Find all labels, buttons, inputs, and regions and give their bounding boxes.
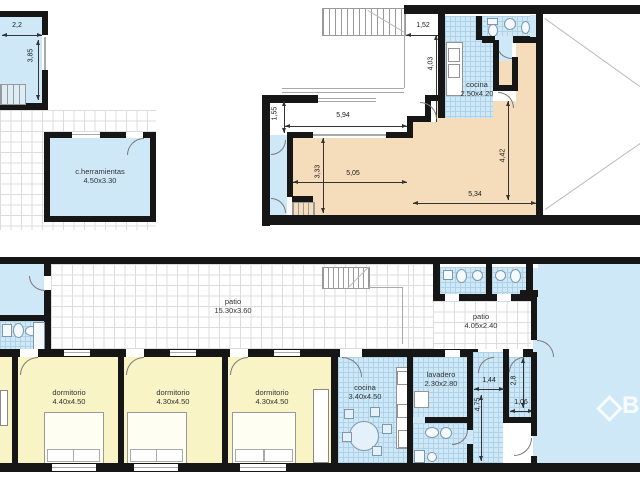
wall (262, 95, 270, 226)
dimension-label: 1,55 (272, 102, 279, 126)
door-gap (445, 294, 459, 301)
room-label-herramientas: c.herramientas 4.50x3.30 (72, 167, 128, 186)
room-label-lavadero: lavadero 2.30x2.80 (413, 370, 469, 389)
pillow (73, 449, 100, 462)
chair (370, 407, 380, 417)
dimension-label: 2,8 (511, 370, 518, 392)
dimension-label: 2,2 (4, 22, 30, 29)
washing-machine (414, 391, 429, 408)
room-size: 4.30x4.50 (244, 397, 300, 406)
dimension-label: 4,03 (428, 52, 435, 76)
room-name: cocina (337, 383, 393, 392)
room-size: 2.50x4.20 (449, 89, 505, 98)
bathtub (33, 322, 45, 351)
wall (42, 70, 48, 103)
window (274, 350, 300, 356)
wall (44, 264, 51, 276)
wall (531, 352, 537, 436)
room-label-dorm2: dormitorio 4.30x4.50 (145, 388, 201, 407)
dimension-line (510, 411, 533, 412)
dimension-line (293, 182, 407, 183)
pillow (130, 449, 157, 462)
sink (504, 18, 516, 30)
wall (0, 11, 48, 17)
patio-edge (368, 287, 402, 288)
dimension-line (285, 126, 407, 127)
room-size: 3.40x4.50 (337, 392, 393, 401)
window (64, 352, 90, 353)
dimension-label: 1,52 (408, 22, 438, 29)
wall (44, 132, 50, 222)
room-size: 15.30x3.60 (205, 306, 261, 315)
room-label-dorm1: dormitorio 4.40x4.50 (41, 388, 97, 407)
dimension-label: 5,34 (462, 191, 488, 198)
floor-plan-canvas: 2,2 3,85 c.herramientas 4.50x3.30 1,52 4… (0, 0, 640, 480)
dimension-line (323, 138, 324, 213)
void-rail (404, 14, 405, 88)
chair (382, 424, 392, 434)
room-name: dormitorio (244, 388, 300, 397)
window (72, 134, 100, 135)
dimension-label: 5,05 (340, 170, 366, 177)
wall (287, 135, 293, 197)
wall (42, 17, 48, 35)
sink (472, 270, 483, 281)
patio-edge (402, 287, 403, 344)
room-size: 4.30x4.50 (145, 397, 201, 406)
room-name: patio (205, 297, 261, 306)
wardrobe (0, 390, 8, 426)
dimension-line (413, 203, 536, 204)
door-gap (509, 349, 523, 357)
door-gap (20, 349, 38, 357)
staircase (0, 84, 26, 105)
dimension-label: 3,33 (315, 160, 322, 184)
washer-drum (440, 427, 452, 439)
toilet (13, 323, 24, 338)
dimension-line (474, 389, 504, 390)
sink (495, 270, 506, 281)
room-size: 4.05x2.40 (453, 321, 509, 330)
room-label-cocina-upper: cocina 2.50x4.20 (449, 80, 505, 99)
door-gap (445, 350, 460, 357)
room-label-patio-main: patio 15.30x3.60 (205, 297, 261, 316)
wall (262, 95, 318, 103)
pillow (47, 449, 74, 462)
toilet (414, 450, 425, 463)
dimension-line (38, 40, 39, 100)
wall (150, 132, 156, 222)
void-rail (282, 88, 404, 89)
wall (292, 196, 313, 202)
room-name: dormitorio (41, 388, 97, 397)
dimension-line (284, 101, 285, 133)
room-label-dorm3: dormitorio 4.30x4.50 (244, 388, 300, 407)
window (318, 98, 376, 99)
window (170, 350, 196, 356)
wardrobe (313, 389, 329, 463)
room-size: 4.40x4.50 (41, 397, 97, 406)
dimension-label: 1,44 (476, 377, 502, 384)
room-name: lavadero (413, 370, 469, 379)
watermark-letter: B (622, 392, 639, 420)
door-gap (340, 349, 362, 357)
wall (44, 216, 156, 222)
wall (536, 13, 543, 218)
dimension-label: 4,42 (500, 144, 507, 168)
garage-diagonal (544, 18, 640, 87)
door-gap (230, 349, 248, 357)
dimension-line (508, 101, 509, 200)
room-name: cocina (449, 80, 505, 89)
dimension-line (2, 35, 42, 36)
chair (342, 432, 352, 442)
window (64, 350, 90, 356)
duct (530, 15, 536, 37)
wall (0, 257, 640, 264)
window (44, 37, 46, 70)
window (52, 467, 96, 468)
laundry-sink (425, 427, 439, 438)
door-gap (126, 132, 143, 138)
bidet (521, 21, 530, 34)
door-gap (497, 294, 511, 301)
door-arc (420, 102, 437, 119)
window (274, 352, 300, 353)
room-name: patio (453, 312, 509, 321)
wall (287, 132, 313, 138)
wall (531, 296, 537, 340)
stove (448, 48, 460, 62)
room-label-cocina-lower: cocina 3.40x4.50 (337, 383, 393, 402)
chair (344, 409, 354, 419)
garage-diagonal (545, 143, 640, 210)
toilet (456, 269, 467, 283)
toilet (510, 269, 521, 283)
dimension-label: 5,94 (330, 112, 356, 119)
room-name: dormitorio (145, 388, 201, 397)
wall (262, 215, 640, 225)
living-right-strip (516, 43, 537, 101)
void-rail (282, 92, 404, 93)
window (170, 352, 196, 353)
dimension-line (481, 395, 482, 461)
dimension-label: 3,85 (28, 45, 35, 67)
window (72, 132, 100, 138)
window (134, 467, 178, 468)
window (318, 101, 376, 102)
room-size: 2.30x2.80 (413, 379, 469, 388)
window (240, 467, 286, 468)
pillow (156, 449, 183, 462)
window (313, 134, 386, 136)
room-lower-left (0, 264, 44, 317)
room-large-right (538, 264, 640, 463)
wall (531, 456, 537, 463)
bidet (427, 452, 437, 462)
pillow (235, 449, 264, 462)
sink (448, 64, 460, 78)
door-arc (514, 438, 532, 456)
pillow (264, 449, 293, 462)
wall (438, 11, 445, 118)
door-gap (126, 349, 144, 357)
room-name: c.herramientas (72, 167, 128, 176)
wall (331, 357, 338, 463)
wall (0, 463, 640, 472)
patio-small-strip (413, 264, 433, 349)
chair (372, 446, 382, 456)
bidet (2, 324, 12, 337)
room-label-patio-small: patio 4.05x2.40 (453, 312, 509, 331)
room-size: 4.50x3.30 (72, 176, 128, 185)
shower (443, 270, 453, 280)
staircase (322, 8, 406, 36)
